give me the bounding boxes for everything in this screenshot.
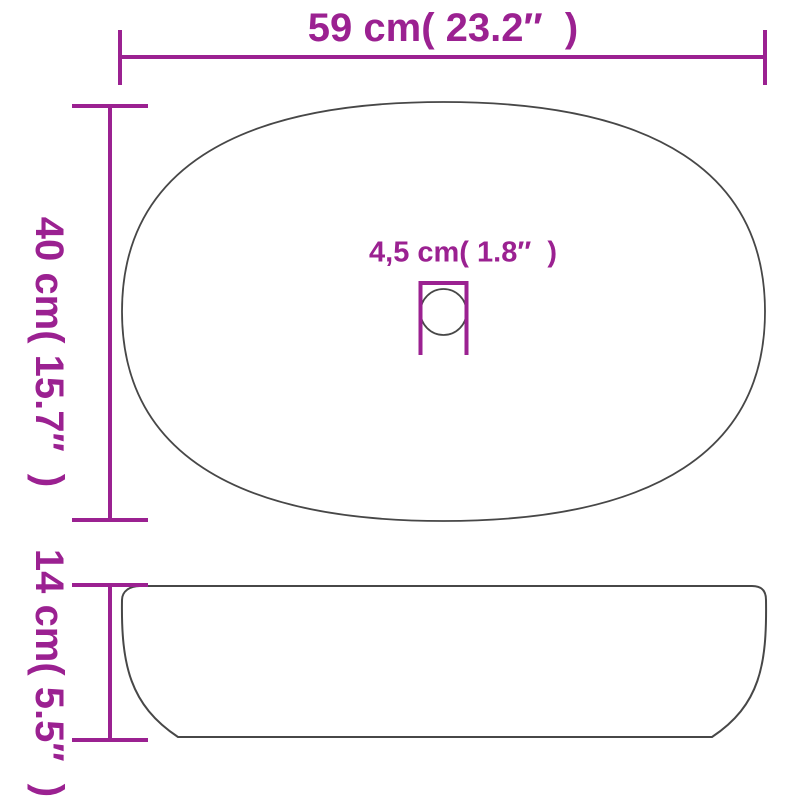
side-view-basin-outline: [122, 586, 766, 737]
width-dimension-label: 59 cm( 23.2″ ): [308, 8, 578, 48]
drain-dimension-label: 4,5 cm( 1.8″ ): [369, 239, 557, 268]
depth-dimension-label: 40 cm( 15.7″ ): [29, 217, 69, 487]
drain-dimension-lines: [419, 283, 469, 355]
height-dimension-label: 14 cm( 5.5″ ): [29, 549, 69, 797]
diagram-shapes: [0, 0, 800, 800]
height-dimension-lines: [72, 585, 148, 740]
top-view-basin-outline: [122, 102, 765, 521]
depth-dimension-lines: [72, 106, 148, 520]
drain-hole-circle: [421, 289, 467, 335]
dimension-diagram: 59 cm( 23.2″ ) 40 cm( 15.7″ ) 4,5 cm( 1.…: [0, 0, 800, 800]
